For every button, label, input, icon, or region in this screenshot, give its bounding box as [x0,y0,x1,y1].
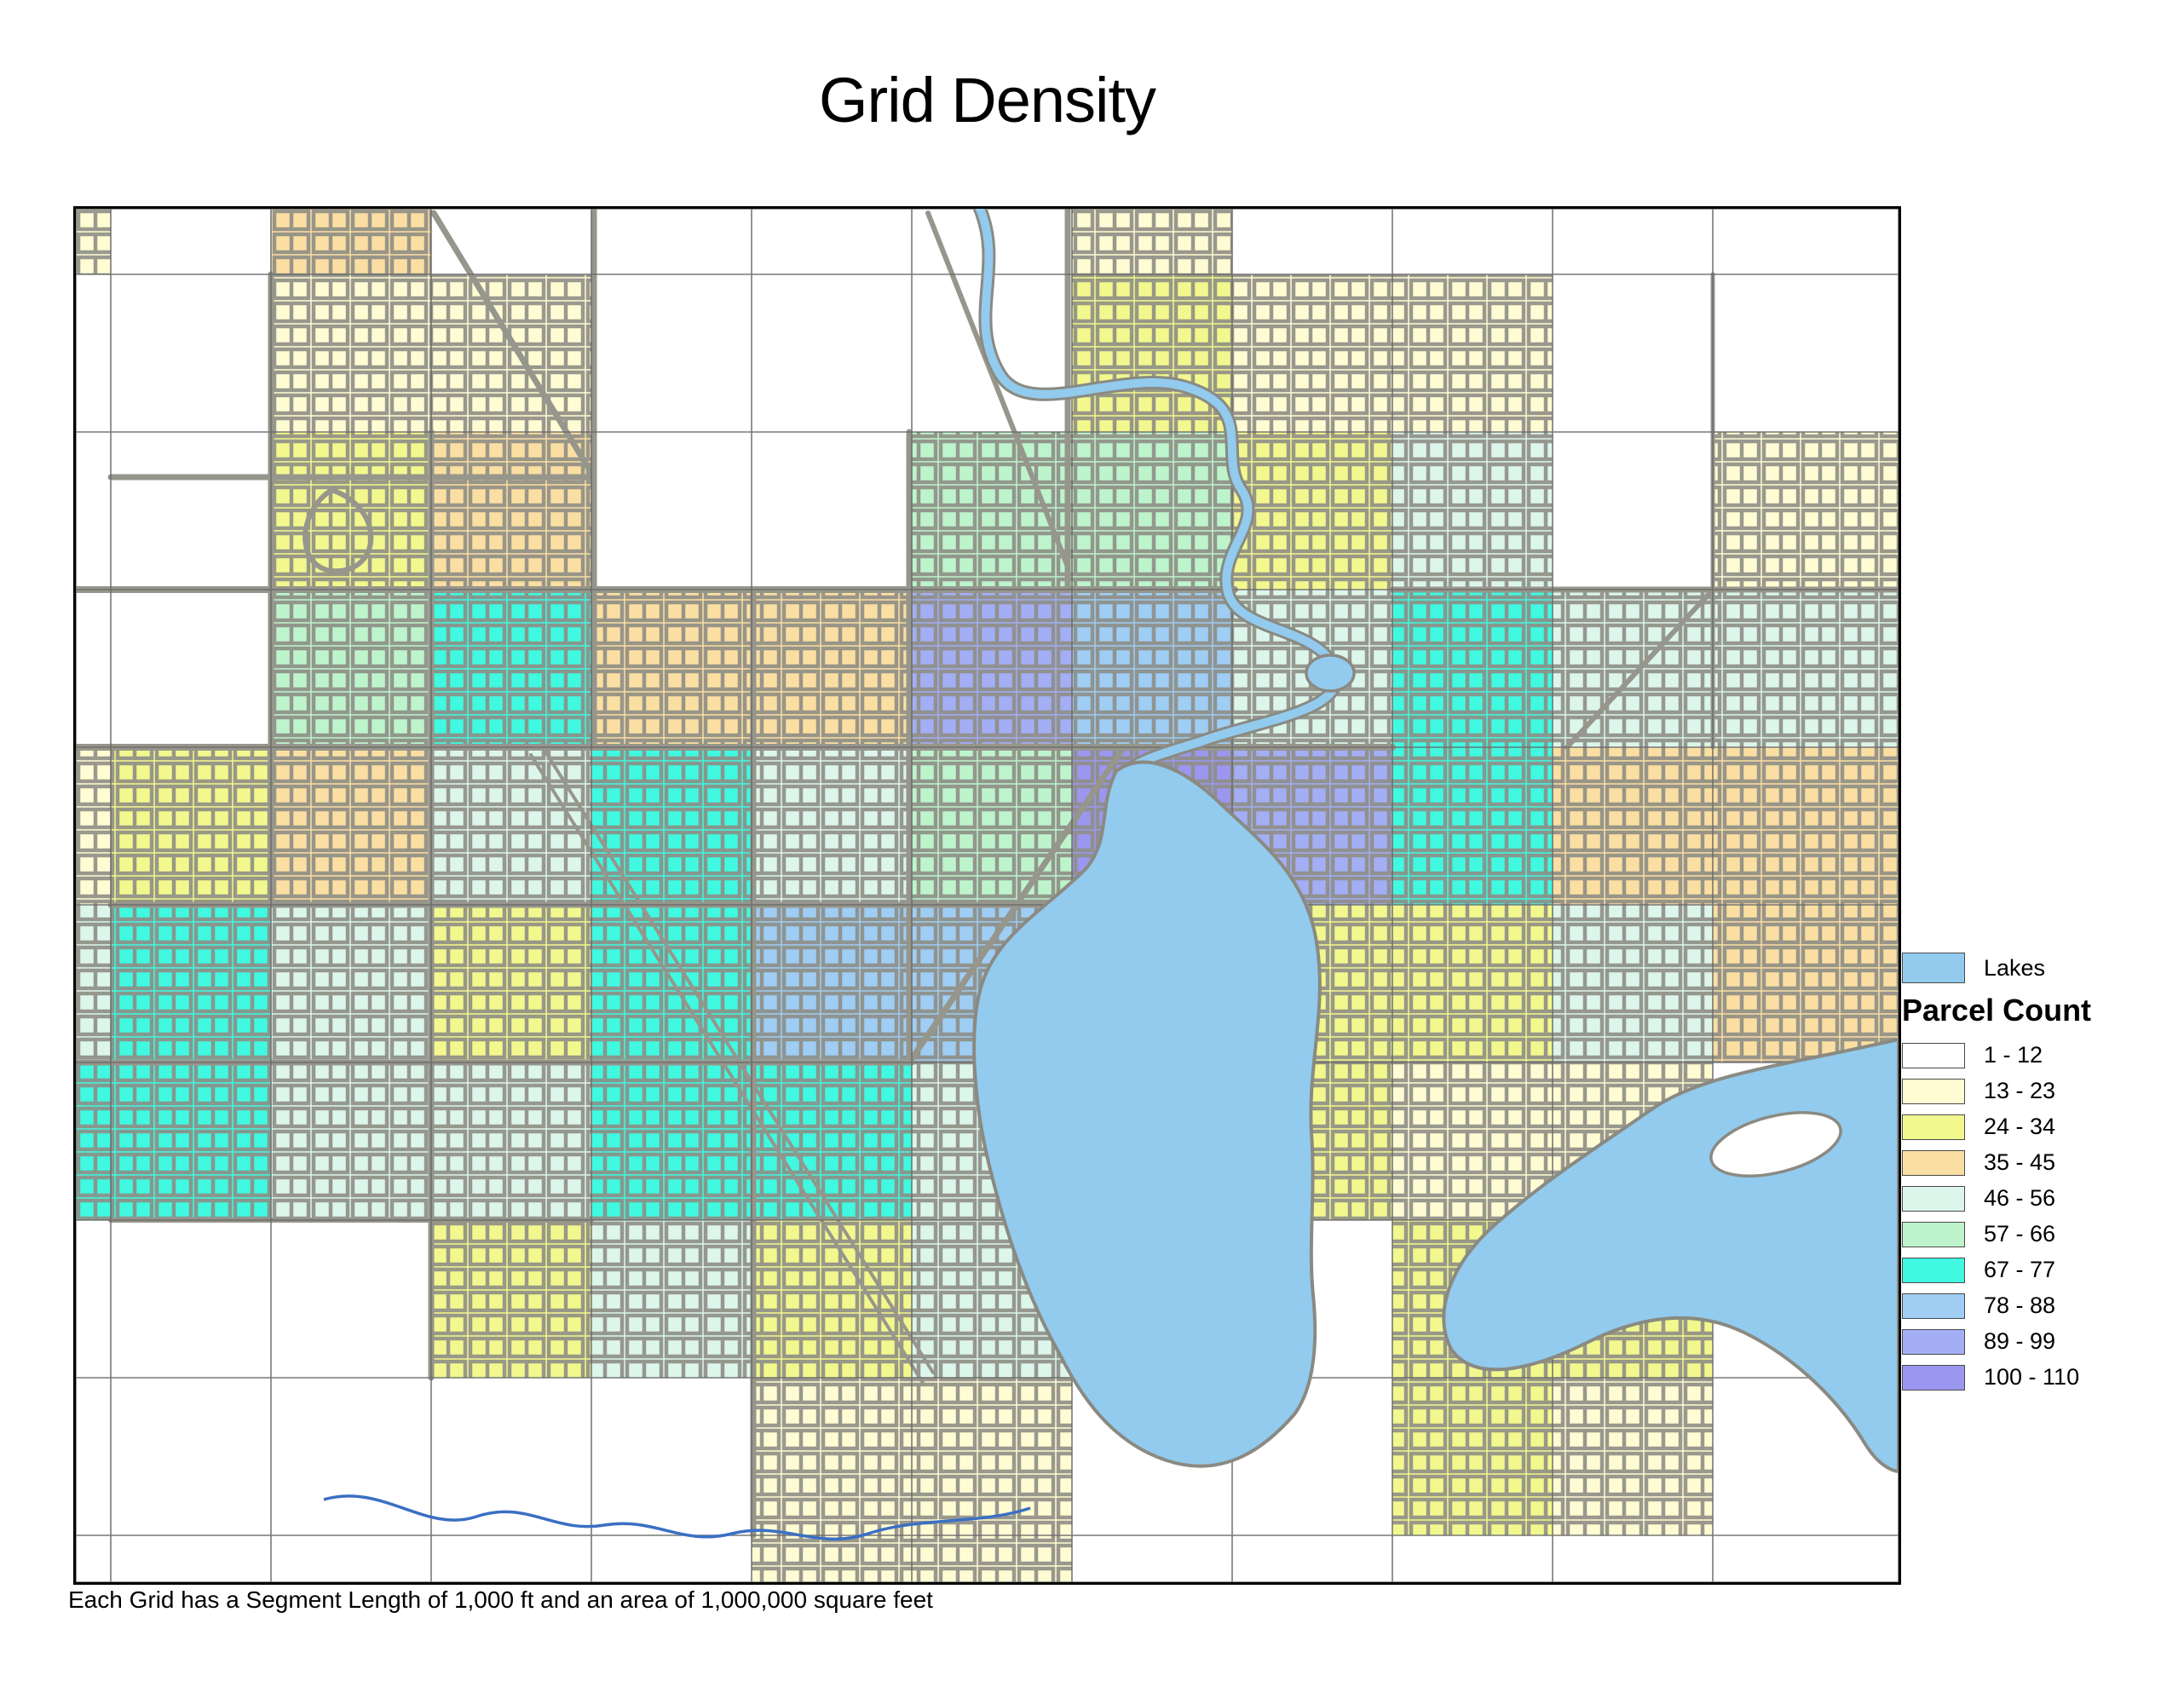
pond [1306,655,1354,691]
class-swatch [1902,1186,1965,1212]
legend-header: Parcel Count [1902,993,2175,1028]
class-swatch [1902,1258,1965,1283]
class-swatch [1902,1365,1965,1390]
class-swatch [1902,1293,1965,1319]
legend-row-67-77: 67 - 77 [1902,1257,2175,1283]
legend-row-57-66: 57 - 66 [1902,1221,2175,1247]
lakes-swatch [1902,953,1965,983]
class-label: 57 - 66 [1984,1221,2055,1247]
legend-row-46-56: 46 - 56 [1902,1185,2175,1212]
map-frame [73,206,1901,1585]
legend-class-list: 1 - 1213 - 2324 - 3435 - 4546 - 5657 - 6… [1902,1042,2175,1390]
legend-lakes-row: Lakes [1902,953,2175,983]
class-swatch [1902,1114,1965,1140]
legend: Lakes Parcel Count 1 - 1213 - 2324 - 343… [1902,953,2175,1400]
class-swatch [1902,1150,1965,1176]
map-canvas [76,209,1899,1582]
class-label: 1 - 12 [1984,1042,2043,1068]
legend-row-24-34: 24 - 34 [1902,1114,2175,1140]
class-label: 100 - 110 [1984,1364,2079,1390]
class-label: 13 - 23 [1984,1078,2055,1104]
legend-row-35-45: 35 - 45 [1902,1149,2175,1176]
legend-row-89-99: 89 - 99 [1902,1328,2175,1355]
lakes-label: Lakes [1984,955,2045,982]
class-label: 78 - 88 [1984,1293,2055,1319]
class-swatch [1902,1329,1965,1355]
class-label: 24 - 34 [1984,1114,2055,1140]
class-swatch [1902,1043,1965,1068]
legend-row-13-23: 13 - 23 [1902,1078,2175,1104]
class-label: 67 - 77 [1984,1257,2055,1283]
legend-row-1-12: 1 - 12 [1902,1042,2175,1068]
class-label: 35 - 45 [1984,1149,2055,1176]
page-title: Grid Density [76,64,1899,136]
legend-row-78-88: 78 - 88 [1902,1293,2175,1319]
legend-row-100-110: 100 - 110 [1902,1364,2175,1390]
class-label: 46 - 56 [1984,1185,2055,1212]
class-label: 89 - 99 [1984,1328,2055,1355]
page: { "title": "Grid Density", "caption": "E… [0,0,2184,1687]
class-swatch [1902,1222,1965,1247]
class-swatch [1902,1079,1965,1104]
map-caption: Each Grid has a Segment Length of 1,000 … [68,1586,933,1614]
